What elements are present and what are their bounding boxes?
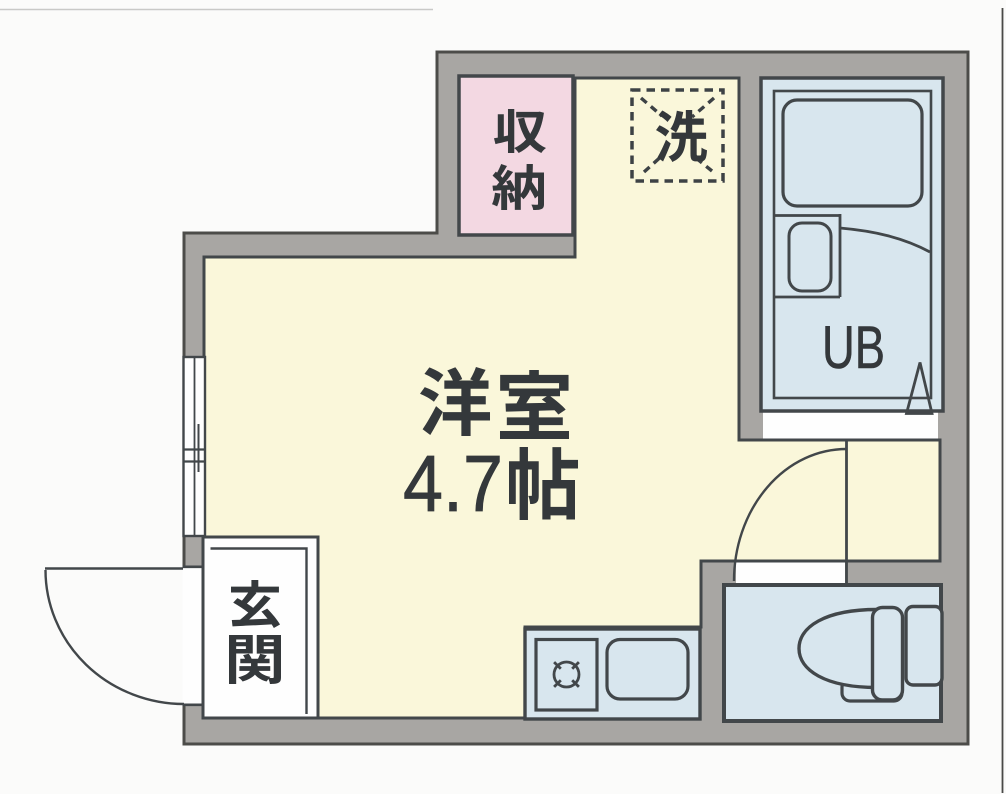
svg-text:UB: UB <box>822 314 885 381</box>
svg-text:4.7: 4.7 <box>403 439 503 528</box>
